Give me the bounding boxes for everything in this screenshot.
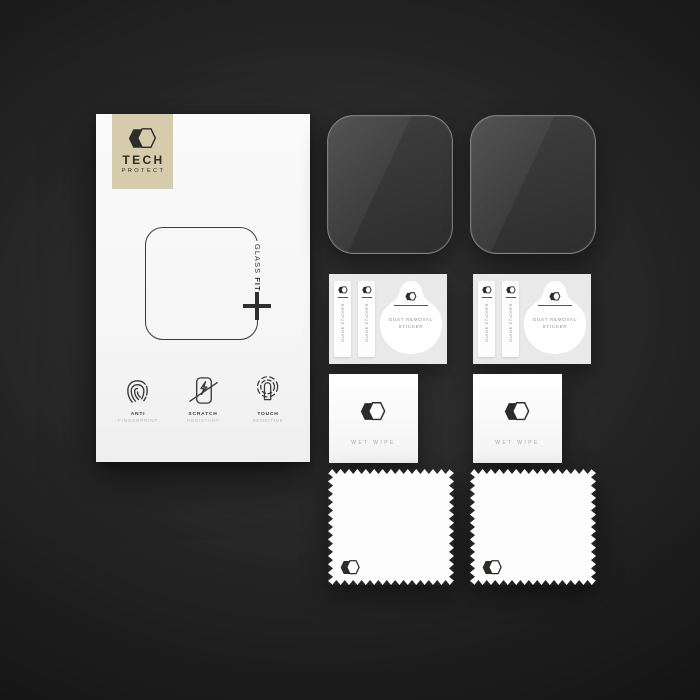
feature-anti-fingerprint: ANTI FINGERPRINT	[107, 374, 169, 424]
glass-outline-diagram: GLASS FIT	[145, 227, 258, 340]
guide-sticker-label: GUIDE STICKER	[508, 303, 513, 342]
dust-removal-sticker: DUST REMOVAL STICKER	[379, 281, 443, 355]
sticker-logo-icon	[405, 292, 417, 301]
wet-wipe-logo-icon	[504, 401, 531, 422]
strip-logo-icon	[338, 286, 348, 294]
plus-icon	[243, 292, 271, 320]
brand-name: TECH	[122, 153, 164, 167]
strip-logo-icon	[362, 286, 372, 294]
feature-label-line2: RESISTANT	[187, 419, 219, 424]
guide-sticker-label: GUIDE STICKER	[364, 303, 369, 342]
sticker-logo-icon	[549, 292, 561, 301]
wet-wipe-packet-1: WET WIPE	[329, 374, 418, 463]
dust-removal-sticker: DUST REMOVAL STICKER	[523, 281, 587, 355]
cloth-logo-icon	[482, 559, 503, 576]
guide-sticker-label: GUIDE STICKER	[484, 303, 489, 342]
glass-fit-word1: GLASS	[253, 244, 262, 274]
feature-label-line1: TOUCH	[257, 412, 278, 417]
feature-label-line1: SCRATCH	[188, 412, 217, 417]
dust-removal-label-line2: STICKER	[399, 324, 424, 329]
sticker-card-2: GUIDE STICKER GUIDE STICKER DUST REMOVAL…	[473, 274, 591, 364]
divider	[506, 297, 516, 298]
guide-sticker-strip: GUIDE STICKER	[478, 281, 495, 357]
feature-list: ANTI FINGERPRINT SCRATCH RESISTANT TOU	[104, 374, 302, 424]
glass-fit-word2: FIT	[253, 277, 262, 291]
wet-wipe-label: WET WIPE	[351, 440, 395, 446]
guide-sticker-strip: GUIDE STICKER	[358, 281, 375, 357]
scratch-resistant-icon	[187, 374, 220, 407]
touch-sensitive-icon	[252, 374, 283, 407]
feature-label-line2: SENSITIVE	[253, 419, 284, 424]
guide-sticker-strip: GUIDE STICKER	[502, 281, 519, 357]
strip-logo-icon	[482, 286, 492, 294]
product-photo-stage: TECH PROTECT GLASS FIT ANTI FINGERPRINT	[0, 0, 700, 700]
glass-fit-label: GLASS FIT	[253, 241, 262, 295]
guide-sticker-strip: GUIDE STICKER	[334, 281, 351, 357]
retail-box: TECH PROTECT GLASS FIT ANTI FINGERPRINT	[96, 114, 310, 462]
guide-sticker-label: GUIDE STICKER	[340, 303, 345, 342]
feature-label-line2: FINGERPRINT	[118, 419, 158, 424]
divider	[394, 305, 428, 306]
sticker-content: DUST REMOVAL STICKER	[523, 281, 587, 355]
divider	[362, 297, 372, 298]
brand-subname: PROTECT	[122, 168, 166, 174]
dust-removal-label-line1: DUST REMOVAL	[389, 317, 433, 322]
divider	[538, 305, 572, 306]
fingerprint-icon	[122, 374, 153, 407]
cloth-logo-icon	[340, 559, 361, 576]
glass-protector-1	[327, 115, 453, 254]
feature-scratch-resistant: SCRATCH RESISTANT	[172, 374, 234, 424]
wet-wipe-packet-2: WET WIPE	[473, 374, 562, 463]
strip-logo-icon	[506, 286, 516, 294]
sticker-content: DUST REMOVAL STICKER	[379, 281, 443, 355]
brand-badge: TECH PROTECT	[112, 114, 173, 189]
microfiber-cloth-2	[470, 469, 596, 585]
wet-wipe-label: WET WIPE	[495, 440, 539, 446]
glass-protector-2	[470, 115, 596, 254]
feature-label-line1: ANTI	[131, 412, 146, 417]
sticker-card-1: GUIDE STICKER GUIDE STICKER DUST REMOVAL…	[329, 274, 447, 364]
dust-removal-label-line1: DUST REMOVAL	[533, 317, 577, 322]
microfiber-cloth-1	[328, 469, 454, 585]
dust-removal-label-line2: STICKER	[543, 324, 568, 329]
wet-wipe-logo-icon	[360, 401, 387, 422]
feature-touch-sensitive: TOUCH SENSITIVE	[237, 374, 299, 424]
brand-logo-icon	[128, 127, 158, 150]
divider	[482, 297, 492, 298]
divider	[338, 297, 348, 298]
